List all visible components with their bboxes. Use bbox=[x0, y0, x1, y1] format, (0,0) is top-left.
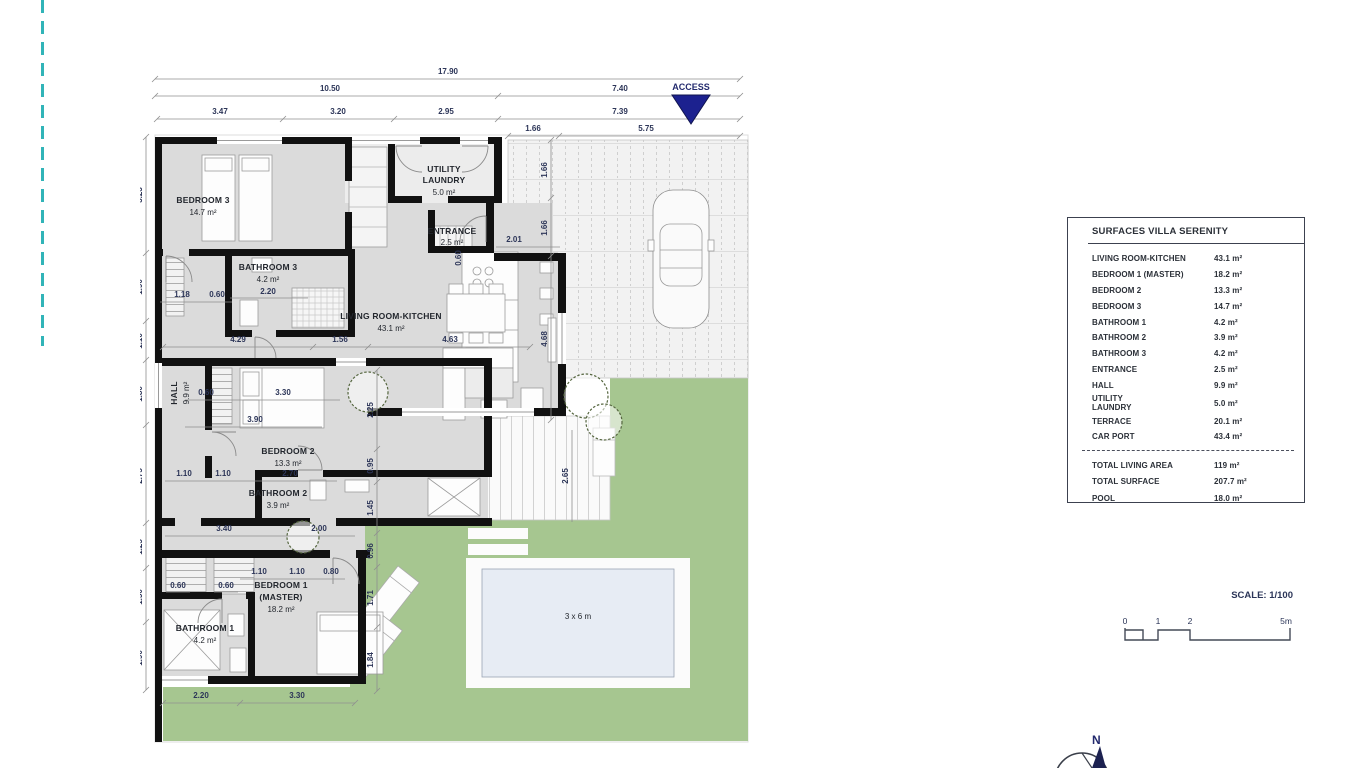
svg-text:BEDROOM 1: BEDROOM 1 bbox=[254, 580, 307, 590]
svg-text:3.30: 3.30 bbox=[289, 691, 305, 700]
svg-text:7.40: 7.40 bbox=[612, 84, 628, 93]
stepping-stone bbox=[468, 528, 528, 539]
svg-text:3.30: 3.30 bbox=[275, 388, 291, 397]
table-row: BATHROOM 34.2 m² bbox=[1092, 346, 1298, 362]
crop-dashed-line bbox=[41, 0, 44, 346]
swimming-pool: 3 x 6 m bbox=[466, 558, 690, 688]
table-row: BATHROOM 14.2 m² bbox=[1092, 314, 1298, 330]
svg-text:0.96: 0.96 bbox=[366, 543, 375, 559]
table-row: UTILITYLAUNDRY 5.0 m² bbox=[1092, 393, 1298, 413]
surfaces-table-title: SURFACES VILLA SERENITY bbox=[1088, 226, 1304, 244]
north-label: N bbox=[1092, 733, 1101, 747]
svg-text:2.20: 2.20 bbox=[193, 691, 209, 700]
svg-text:1.45: 1.45 bbox=[366, 500, 375, 516]
tree-icon bbox=[586, 404, 622, 440]
svg-text:1.90: 1.90 bbox=[140, 279, 144, 295]
svg-text:BEDROOM 2: BEDROOM 2 bbox=[261, 446, 314, 456]
svg-text:LIVING ROOM-KITCHEN: LIVING ROOM-KITCHEN bbox=[340, 311, 442, 321]
svg-text:0.60: 0.60 bbox=[454, 250, 463, 266]
svg-text:1.10: 1.10 bbox=[215, 469, 231, 478]
svg-text:14.7 m²: 14.7 m² bbox=[189, 208, 216, 217]
surfaces-table-totals: TOTAL LIVING AREA119 m² TOTAL SURFACE207… bbox=[1068, 455, 1304, 507]
svg-text:2.01: 2.01 bbox=[506, 235, 522, 244]
svg-text:2.20: 2.20 bbox=[260, 287, 276, 296]
svg-text:3.9 m²: 3.9 m² bbox=[267, 501, 290, 510]
table-row: ENTRANCE2.5 m² bbox=[1092, 362, 1298, 378]
svg-text:1.80: 1.80 bbox=[140, 386, 144, 402]
floor-plan-page: 3 x 6 m bbox=[0, 0, 1366, 768]
table-row: CAR PORT43.4 m² bbox=[1092, 429, 1298, 445]
svg-text:1.66: 1.66 bbox=[540, 220, 549, 236]
table-row: TERRACE20.1 m² bbox=[1092, 413, 1298, 429]
pool-size-label: 3 x 6 m bbox=[565, 612, 592, 621]
table-row: BATHROOM 23.9 m² bbox=[1092, 330, 1298, 346]
svg-text:1.66: 1.66 bbox=[525, 124, 541, 133]
svg-text:2.70: 2.70 bbox=[282, 469, 298, 478]
scale-bar-line bbox=[1125, 628, 1290, 640]
svg-text:2.65: 2.65 bbox=[561, 468, 570, 484]
svg-text:1.10: 1.10 bbox=[289, 567, 305, 576]
svg-text:4.2 m²: 4.2 m² bbox=[194, 636, 217, 645]
table-divider bbox=[1082, 450, 1294, 451]
svg-text:1.50: 1.50 bbox=[140, 589, 144, 605]
svg-text:0.95: 0.95 bbox=[366, 458, 375, 474]
svg-text:1.25: 1.25 bbox=[140, 539, 144, 555]
table-row: BEDROOM 1 (MASTER)18.2 m² bbox=[1092, 267, 1298, 283]
table-row: LIVING ROOM-KITCHEN43.1 m² bbox=[1092, 251, 1298, 267]
svg-text:2.25: 2.25 bbox=[366, 402, 375, 418]
svg-text:3.40: 3.40 bbox=[216, 524, 232, 533]
access-marker: ACCESS bbox=[672, 82, 710, 124]
svg-text:BATHROOM 1: BATHROOM 1 bbox=[176, 623, 235, 633]
svg-text:0.60: 0.60 bbox=[198, 388, 214, 397]
svg-text:HALL: HALL bbox=[169, 381, 179, 404]
svg-text:1.18: 1.18 bbox=[174, 290, 190, 299]
car-icon bbox=[648, 190, 714, 328]
svg-text:2: 2 bbox=[1188, 616, 1193, 626]
table-row: BEDROOM 314.7 m² bbox=[1092, 298, 1298, 314]
table-total-row: TOTAL LIVING AREA119 m² bbox=[1092, 457, 1298, 474]
svg-text:BATHROOM 3: BATHROOM 3 bbox=[239, 262, 298, 272]
svg-text:4.68: 4.68 bbox=[540, 331, 549, 347]
svg-text:UTILITY: UTILITY bbox=[427, 164, 461, 174]
svg-text:3.23: 3.23 bbox=[140, 187, 144, 203]
scale-block: SCALE: 1/100 0 1 2 5m bbox=[1113, 588, 1303, 650]
svg-text:1.66: 1.66 bbox=[540, 162, 549, 178]
svg-text:3.47: 3.47 bbox=[212, 107, 228, 116]
svg-text:BATHROOM 2: BATHROOM 2 bbox=[249, 488, 308, 498]
svg-text:1.10: 1.10 bbox=[176, 469, 192, 478]
svg-text:0.80: 0.80 bbox=[323, 567, 339, 576]
stepping-stone bbox=[468, 544, 528, 555]
surfaces-table: SURFACES VILLA SERENITY LIVING ROOM-KITC… bbox=[1067, 217, 1305, 503]
svg-text:BEDROOM 3: BEDROOM 3 bbox=[176, 195, 229, 205]
svg-text:3.90: 3.90 bbox=[247, 415, 263, 424]
svg-text:0.60: 0.60 bbox=[170, 581, 186, 590]
svg-text:1.84: 1.84 bbox=[366, 652, 375, 668]
floor-plan-drawing: 3 x 6 m bbox=[140, 60, 780, 768]
svg-text:(MASTER): (MASTER) bbox=[259, 592, 302, 602]
access-arrow-icon bbox=[672, 95, 710, 124]
svg-text:9.9 m²: 9.9 m² bbox=[182, 381, 191, 404]
svg-text:4.63: 4.63 bbox=[442, 335, 458, 344]
svg-text:10.50: 10.50 bbox=[320, 84, 341, 93]
table-total-row: TOTAL SURFACE207.7 m² bbox=[1092, 473, 1298, 490]
svg-text:0.60: 0.60 bbox=[218, 581, 234, 590]
svg-text:1: 1 bbox=[1156, 616, 1161, 626]
svg-text:43.1 m²: 43.1 m² bbox=[377, 324, 404, 333]
svg-text:5.0 m²: 5.0 m² bbox=[433, 188, 456, 197]
table-row: HALL9.9 m² bbox=[1092, 377, 1298, 393]
svg-text:4.29: 4.29 bbox=[230, 335, 246, 344]
svg-text:1.71: 1.71 bbox=[366, 590, 375, 606]
svg-text:2.75: 2.75 bbox=[140, 468, 144, 484]
svg-text:1.10: 1.10 bbox=[140, 333, 144, 349]
scale-label: SCALE: 1/100 bbox=[1231, 590, 1293, 601]
svg-text:0.60: 0.60 bbox=[209, 290, 225, 299]
svg-text:5.75: 5.75 bbox=[638, 124, 654, 133]
svg-text:2.5 m²: 2.5 m² bbox=[441, 238, 464, 247]
svg-text:4.2 m²: 4.2 m² bbox=[257, 275, 280, 284]
svg-text:1.56: 1.56 bbox=[332, 335, 348, 344]
svg-text:LAUNDRY: LAUNDRY bbox=[423, 175, 466, 185]
svg-text:2.95: 2.95 bbox=[438, 107, 454, 116]
svg-text:0: 0 bbox=[1123, 616, 1128, 626]
svg-text:7.39: 7.39 bbox=[612, 107, 628, 116]
svg-text:13.3 m²: 13.3 m² bbox=[274, 459, 301, 468]
svg-text:2.00: 2.00 bbox=[311, 524, 327, 533]
north-compass: N bbox=[1040, 733, 1160, 768]
table-row: BEDROOM 213.3 m² bbox=[1092, 283, 1298, 299]
svg-text:1.10: 1.10 bbox=[251, 567, 267, 576]
svg-text:17.90: 17.90 bbox=[438, 67, 459, 76]
svg-text:1.90: 1.90 bbox=[140, 650, 144, 666]
svg-text:3.20: 3.20 bbox=[330, 107, 346, 116]
svg-text:5m: 5m bbox=[1280, 616, 1292, 626]
access-label: ACCESS bbox=[672, 82, 710, 92]
svg-text:18.2 m²: 18.2 m² bbox=[267, 605, 294, 614]
svg-text:ENTRANCE: ENTRANCE bbox=[428, 226, 477, 236]
surfaces-table-rows: LIVING ROOM-KITCHEN43.1 m² BEDROOM 1 (MA… bbox=[1068, 244, 1304, 445]
table-total-row: POOL18.0 m² bbox=[1092, 490, 1298, 507]
